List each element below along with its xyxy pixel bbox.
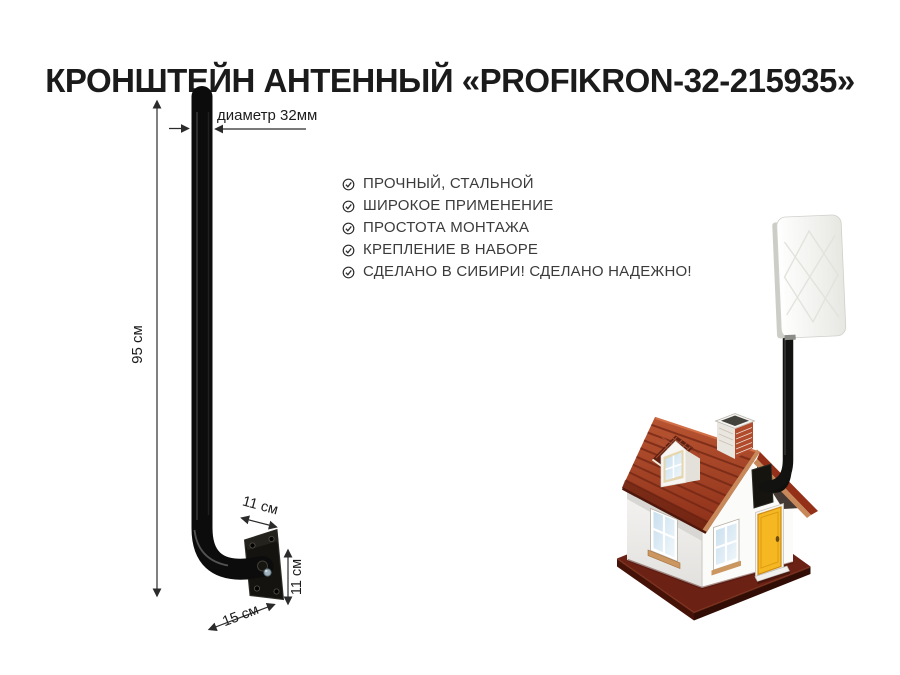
height-label: 95 см (129, 325, 146, 364)
front-window (712, 519, 742, 576)
check-circle-icon (342, 222, 355, 235)
feature-text: СДЕЛАНО В СИБИРИ! СДЕЛАНО НАДЕЖНО! (363, 264, 692, 280)
feature-item: ПРОСТОТА МОНТАЖА (342, 220, 692, 236)
feature-item: ШИРОКОЕ ПРИМЕНЕНИЕ (342, 198, 692, 214)
dimension-arrows (157, 101, 306, 630)
plate-width-dimension-line (242, 518, 277, 527)
check-circle-icon (342, 266, 355, 279)
feature-item: СДЕЛАНО В СИБИРИ! СДЕЛАНО НАДЕЖНО! (342, 264, 692, 280)
feature-text: КРЕПЛЕНИЕ В НАБОРЕ (363, 242, 538, 258)
check-circle-icon (342, 178, 355, 191)
feature-text: ШИРОКОЕ ПРИМЕНЕНИЕ (363, 198, 553, 214)
feature-list: ПРОЧНЫЙ, СТАЛЬНОЙ ШИРОКОЕ ПРИМЕНЕНИЕ ПРО… (342, 176, 692, 286)
check-circle-icon (342, 244, 355, 257)
feature-text: ПРОСТОТА МОНТАЖА (363, 220, 529, 236)
plate-height-label: 11 см (289, 559, 305, 595)
feature-item: ПРОЧНЫЙ, СТАЛЬНОЙ (342, 176, 692, 192)
product-banner: КРОНШТЕЙН АНТЕННЫЙ «PROFIKRON-32-215935» (0, 0, 900, 675)
feature-item: КРЕПЛЕНИЕ В НАБОРЕ (342, 242, 692, 258)
check-circle-icon (342, 200, 355, 213)
feature-text: ПРОЧНЫЙ, СТАЛЬНОЙ (363, 176, 534, 192)
diameter-label: диаметр 32мм (217, 107, 317, 124)
antenna-panel (772, 215, 846, 341)
door-handle (776, 536, 780, 542)
